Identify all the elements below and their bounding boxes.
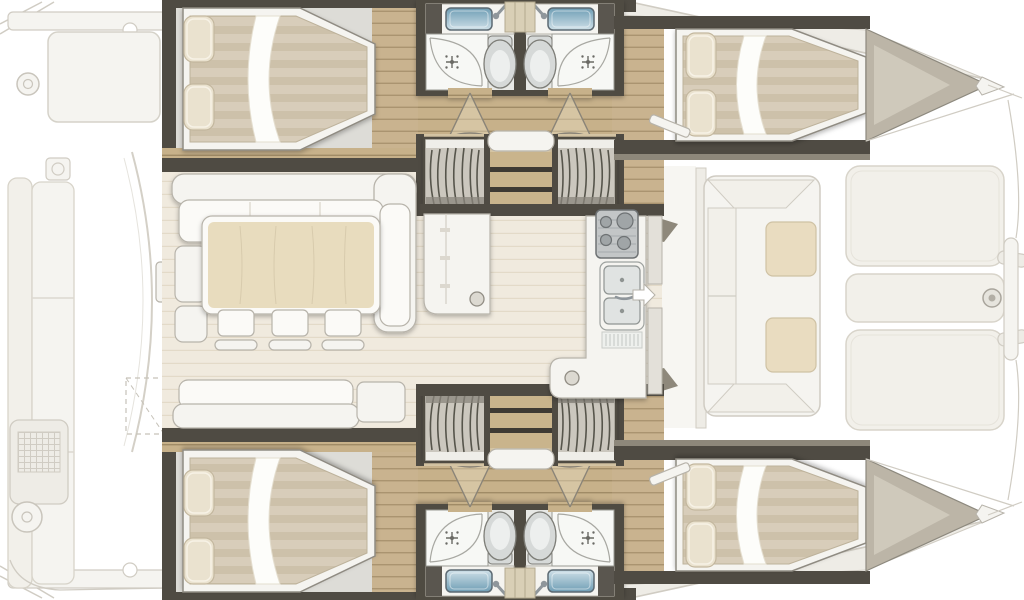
grill-grid (18, 432, 60, 472)
round-handle-icon (470, 292, 484, 306)
sunpad-cushion (846, 166, 1004, 266)
winch-icon (12, 502, 42, 532)
drain-icon (620, 309, 624, 313)
stove (596, 210, 638, 258)
cockpit-beam (8, 12, 170, 30)
winch-icon (17, 73, 39, 95)
storage-cabinet (424, 214, 490, 314)
burner-icon (601, 235, 612, 246)
sunpad-cushion (846, 330, 1004, 430)
sunpads (846, 166, 1004, 430)
burner-icon (601, 217, 612, 228)
side-table (357, 382, 405, 422)
beam-notch (123, 563, 137, 577)
sofa-seat (380, 204, 410, 326)
lounge-table (766, 318, 816, 372)
shelf-tick (440, 228, 450, 232)
shelf-tick (440, 256, 450, 260)
burner-icon (617, 213, 633, 229)
forestay-pin (989, 295, 996, 302)
bow-lounge (704, 176, 820, 416)
round-handle-icon (565, 371, 579, 385)
salon-sofa-aft (173, 380, 359, 428)
dining-table (202, 216, 380, 314)
lounge-table (766, 222, 816, 276)
cup-holder (46, 158, 70, 180)
table-top (208, 222, 374, 308)
stool (175, 306, 207, 342)
burner-icon (618, 237, 631, 250)
cockpit-table (48, 32, 160, 122)
sofa-backrest (173, 404, 359, 428)
windshield-base (648, 308, 662, 394)
sunpad-cushion (846, 274, 1004, 322)
bow-deck-edge (1004, 238, 1018, 360)
drain-icon (620, 278, 624, 282)
catamaran-floor-plan (0, 0, 1024, 600)
shelf-tick (440, 284, 450, 288)
floor-plan-canvas (0, 0, 1024, 600)
windshield-base (648, 216, 662, 284)
